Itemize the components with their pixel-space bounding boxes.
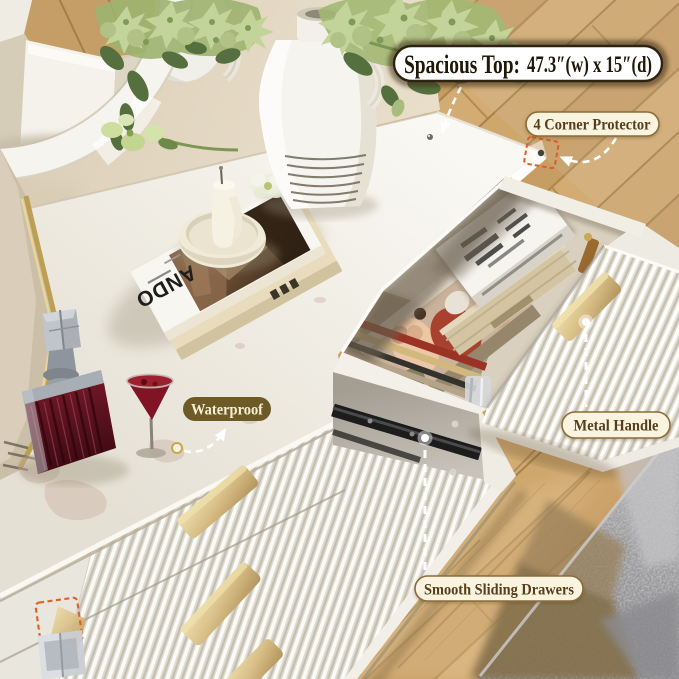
svg-text:Metal Handle: Metal Handle xyxy=(574,418,659,435)
svg-text:4 Corner Protector: 4 Corner Protector xyxy=(534,117,651,134)
svg-text:47.3″(w) x 15″(d): 47.3″(w) x 15″(d) xyxy=(527,52,652,77)
svg-text:Spacious Top:: Spacious Top: xyxy=(404,50,520,79)
svg-text:Smooth Sliding Drawers: Smooth Sliding Drawers xyxy=(424,582,574,599)
svg-text:Waterproof: Waterproof xyxy=(191,402,264,419)
